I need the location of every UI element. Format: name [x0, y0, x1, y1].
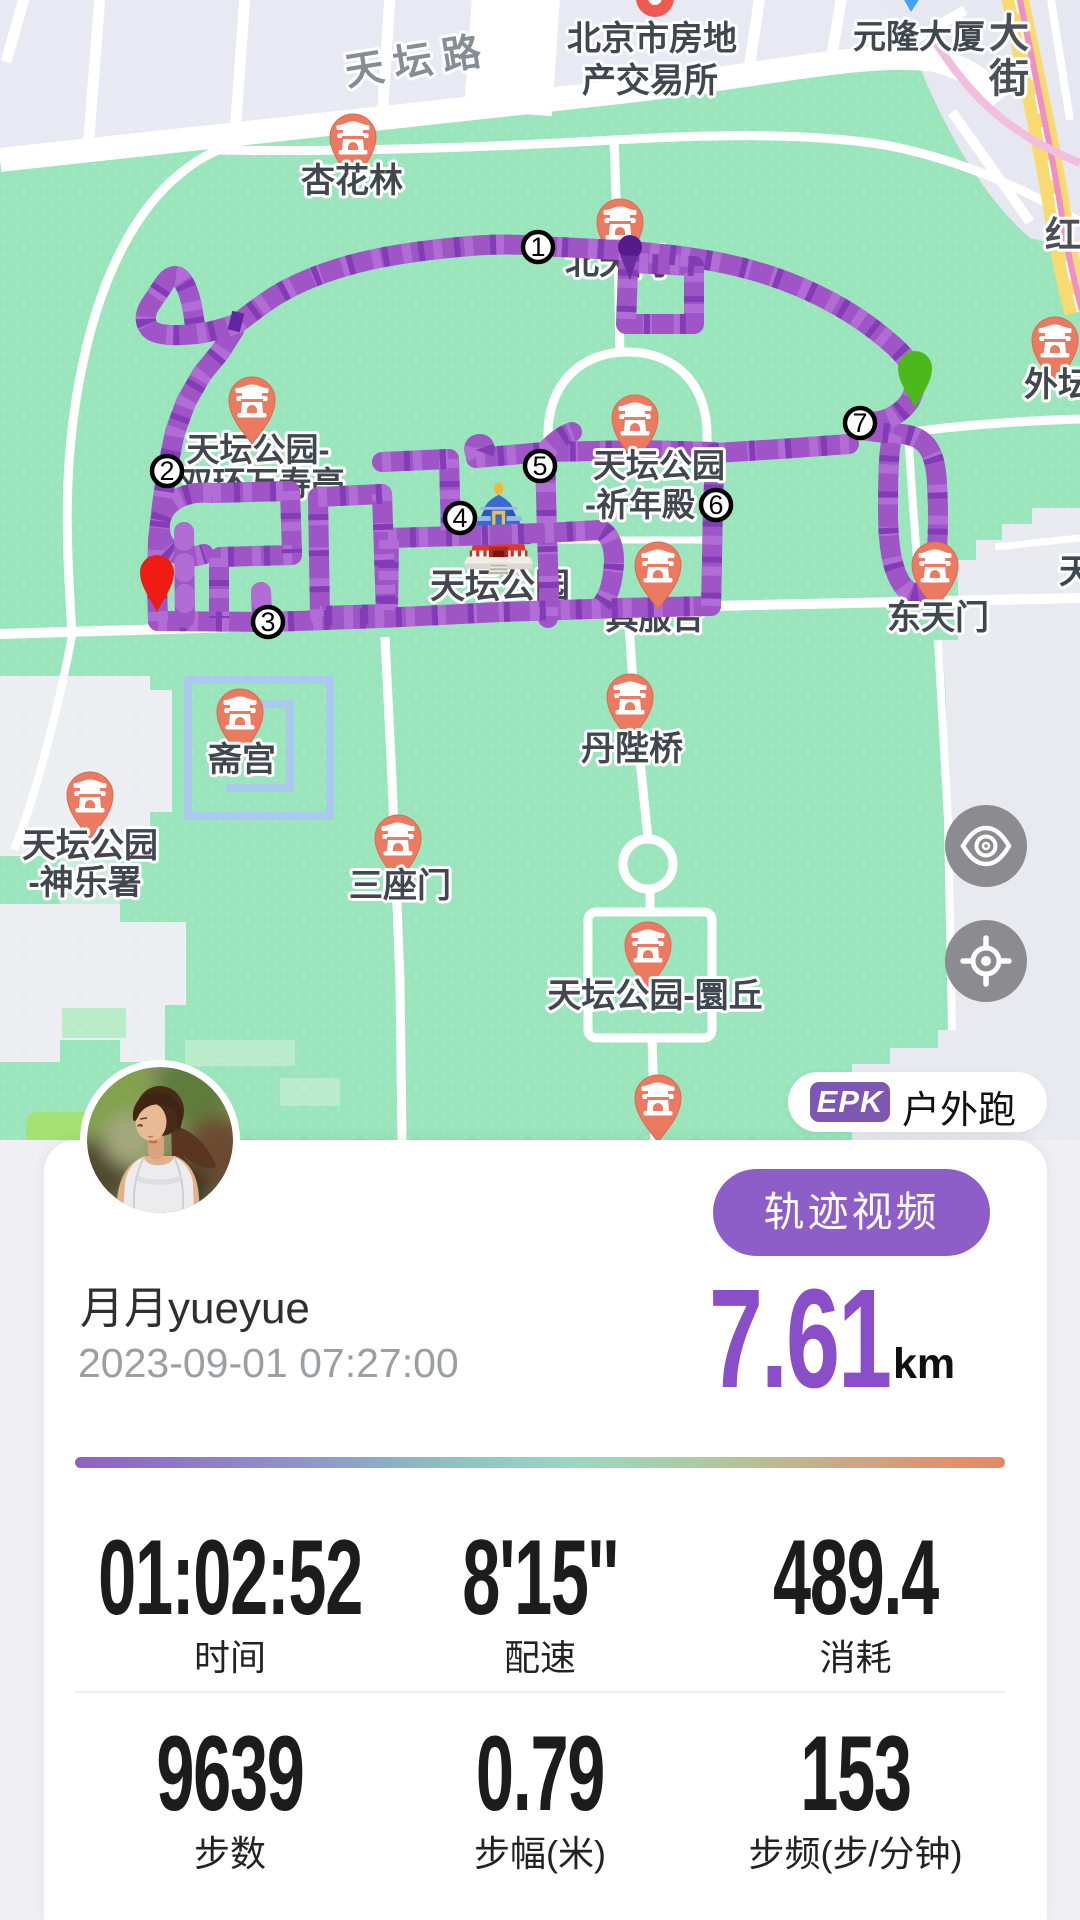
svg-text:红: 红	[1045, 214, 1080, 255]
svg-text:东天门: 东天门	[887, 598, 989, 637]
svg-text:外坛: 外坛	[1024, 366, 1080, 404]
svg-text:3: 3	[260, 607, 275, 637]
svg-text:杏花林: 杏花林	[301, 162, 403, 200]
svg-text:1: 1	[530, 232, 545, 262]
svg-text:北京市房地: 北京市房地	[567, 19, 737, 58]
svg-text:斋宫: 斋宫	[207, 741, 276, 779]
svg-text:天: 天	[1059, 553, 1080, 591]
svg-text:天坛公园: 天坛公园	[22, 827, 158, 865]
svg-text:6: 6	[708, 490, 723, 520]
svg-text:-神乐署: -神乐署	[28, 864, 141, 902]
svg-text:元隆大厦: 元隆大厦	[853, 18, 985, 55]
svg-text:-祈年殿: -祈年殿	[585, 486, 695, 523]
svg-text:4: 4	[452, 503, 467, 533]
svg-text:天坛公园-圜丘: 天坛公园-圜丘	[547, 977, 762, 1015]
svg-text:丹陛桥: 丹陛桥	[581, 730, 683, 768]
svg-text:大: 大	[989, 12, 1029, 56]
svg-text:5: 5	[532, 451, 547, 481]
svg-text:天坛公园: 天坛公园	[593, 447, 725, 484]
svg-text:三座门: 三座门	[349, 867, 451, 905]
svg-text:7: 7	[852, 408, 867, 438]
svg-text:街: 街	[988, 57, 1029, 101]
svg-text:2: 2	[159, 456, 174, 486]
svg-text:产交易所: 产交易所	[582, 61, 718, 100]
